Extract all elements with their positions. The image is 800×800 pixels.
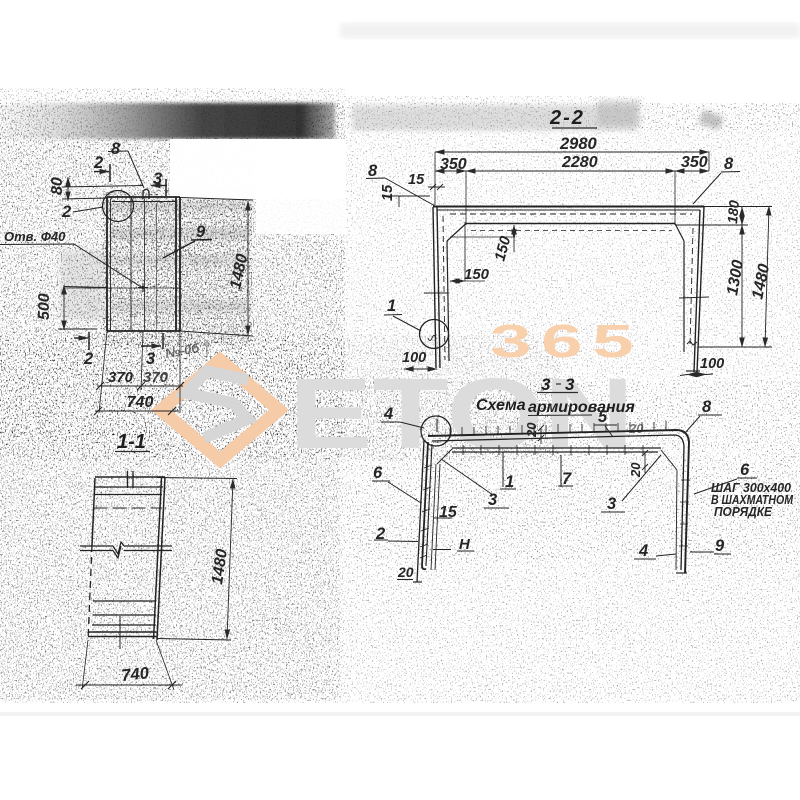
svg-text:3: 3	[153, 170, 162, 188]
svg-text:2: 2	[83, 350, 93, 368]
svg-text:150: 150	[464, 266, 490, 283]
svg-text:15: 15	[408, 172, 425, 188]
svg-text:2: 2	[93, 154, 103, 172]
svg-text:100: 100	[402, 350, 426, 366]
svg-text:8: 8	[724, 155, 734, 173]
svg-text:Н: Н	[459, 536, 471, 553]
svg-text:350: 350	[440, 156, 467, 173]
svg-text:20: 20	[628, 421, 644, 436]
svg-text:4: 4	[638, 542, 648, 560]
svg-text:500: 500	[36, 293, 53, 320]
svg-text:15: 15	[439, 504, 458, 521]
svg-text:15: 15	[380, 184, 396, 201]
svg-text:4: 4	[383, 405, 393, 423]
svg-text:Схема: Схема	[476, 397, 526, 414]
svg-text:8: 8	[368, 162, 378, 180]
svg-text:3: 3	[541, 375, 551, 394]
svg-text:3: 3	[565, 375, 575, 394]
svg-text:100: 100	[700, 356, 724, 372]
svg-text:740: 740	[121, 664, 151, 685]
svg-text:1-1: 1-1	[117, 431, 146, 453]
svg-text:365: 365	[490, 316, 643, 367]
svg-text:20: 20	[397, 564, 414, 580]
svg-text:8: 8	[702, 398, 712, 416]
svg-text:2: 2	[61, 203, 71, 221]
svg-text:7: 7	[562, 470, 572, 488]
svg-text:9: 9	[715, 537, 725, 555]
svg-text:2: 2	[375, 525, 385, 543]
svg-text:армирования: армирования	[528, 399, 635, 416]
svg-text:9: 9	[196, 223, 206, 241]
svg-text:20: 20	[524, 422, 539, 438]
svg-text:3: 3	[146, 350, 155, 368]
svg-text:8: 8	[111, 140, 121, 158]
svg-text:370: 370	[143, 369, 169, 386]
svg-text:3: 3	[488, 491, 497, 509]
svg-text:180: 180	[724, 199, 742, 224]
svg-text:3: 3	[607, 495, 616, 513]
svg-text:20: 20	[628, 462, 643, 478]
svg-text:2-2: 2-2	[549, 107, 585, 129]
svg-text:740: 740	[127, 394, 154, 411]
svg-text:ПОРЯДКЕ: ПОРЯДКЕ	[714, 505, 773, 519]
svg-text:Отв. Ф40: Отв. Ф40	[4, 229, 66, 244]
svg-text:2980: 2980	[559, 135, 598, 153]
svg-text:5: 5	[598, 408, 608, 426]
svg-text:1: 1	[505, 473, 514, 491]
svg-text:80: 80	[49, 177, 66, 195]
svg-text:350: 350	[681, 154, 708, 171]
svg-text:370: 370	[108, 369, 134, 386]
svg-text:1: 1	[387, 297, 396, 315]
svg-text:6: 6	[373, 464, 383, 482]
svg-text:6: 6	[740, 461, 750, 479]
svg-text:2280: 2280	[561, 154, 598, 171]
